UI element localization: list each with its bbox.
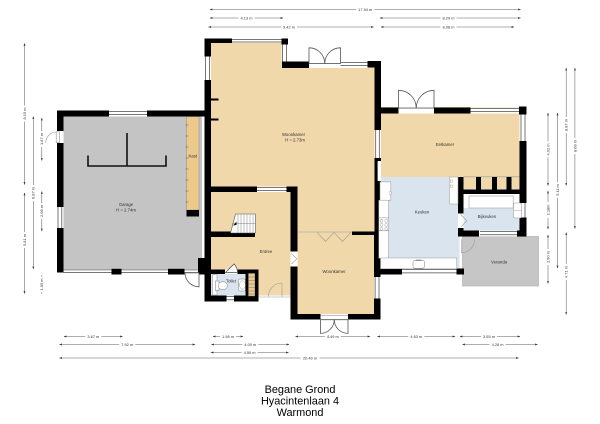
- svg-text:Entree: Entree: [260, 249, 273, 254]
- svg-text:1.67 m: 1.67 m: [39, 133, 44, 145]
- svg-text:Woonkamer: Woonkamer: [282, 132, 306, 137]
- svg-text:Begane Grond: Begane Grond: [265, 384, 336, 396]
- svg-text:6.87 m: 6.87 m: [31, 187, 36, 199]
- svg-text:1.98 m: 1.98 m: [222, 334, 234, 339]
- svg-text:4.49 m: 4.49 m: [327, 334, 339, 339]
- svg-text:1.95 m: 1.95 m: [39, 279, 44, 291]
- svg-text:8.29 m: 8.29 m: [443, 16, 455, 21]
- svg-text:2.90 m: 2.90 m: [545, 251, 550, 263]
- svg-text:4.02 m: 4.02 m: [545, 144, 550, 156]
- svg-text:8.15 m: 8.15 m: [22, 108, 27, 120]
- svg-text:4.63 m: 4.63 m: [410, 334, 422, 339]
- svg-text:8.87 m: 8.87 m: [564, 119, 569, 131]
- svg-text:Toilet: Toilet: [226, 279, 237, 284]
- svg-text:4.71 m: 4.71 m: [564, 266, 569, 278]
- svg-text:4.13 m: 4.13 m: [241, 16, 253, 21]
- svg-text:H = 2.73m: H = 2.73m: [285, 138, 305, 143]
- svg-text:4.00 m: 4.00 m: [244, 342, 256, 347]
- svg-text:2.06 m: 2.06 m: [39, 205, 44, 217]
- svg-text:4.50 m: 4.50 m: [244, 350, 256, 355]
- svg-text:5.81 m: 5.81 m: [22, 234, 27, 246]
- svg-text:3.67 m: 3.67 m: [87, 334, 99, 339]
- svg-text:Kast: Kast: [188, 153, 197, 158]
- svg-text:7.92 m: 7.92 m: [121, 342, 133, 347]
- svg-text:3.55 m: 3.55 m: [483, 334, 495, 339]
- svg-text:Woonkamer: Woonkamer: [322, 269, 346, 274]
- svg-text:5.11 m: 5.11 m: [555, 184, 560, 196]
- svg-text:2.18m: 2.18m: [545, 205, 550, 216]
- svg-text:Eetkamer: Eetkamer: [436, 142, 455, 147]
- svg-text:Warmond: Warmond: [277, 407, 324, 419]
- svg-text:Bijkeuken: Bijkeuken: [478, 214, 497, 219]
- svg-text:Keuken: Keuken: [415, 209, 430, 214]
- svg-text:17.94 m: 17.94 m: [358, 7, 372, 12]
- svg-text:H = 2.74m: H = 2.74m: [116, 208, 136, 213]
- svg-text:9.42 m: 9.42 m: [283, 25, 295, 30]
- svg-text:20.49 m: 20.49 m: [303, 356, 317, 361]
- svg-text:8.68 m: 8.68 m: [572, 140, 577, 152]
- svg-text:4.28 m: 4.28 m: [492, 342, 504, 347]
- svg-text:8.08 m: 8.08 m: [443, 25, 455, 30]
- svg-text:Veranda: Veranda: [491, 259, 508, 264]
- svg-text:Garage: Garage: [119, 202, 134, 207]
- svg-text:Hyacintenlaan 4: Hyacintenlaan 4: [261, 396, 339, 408]
